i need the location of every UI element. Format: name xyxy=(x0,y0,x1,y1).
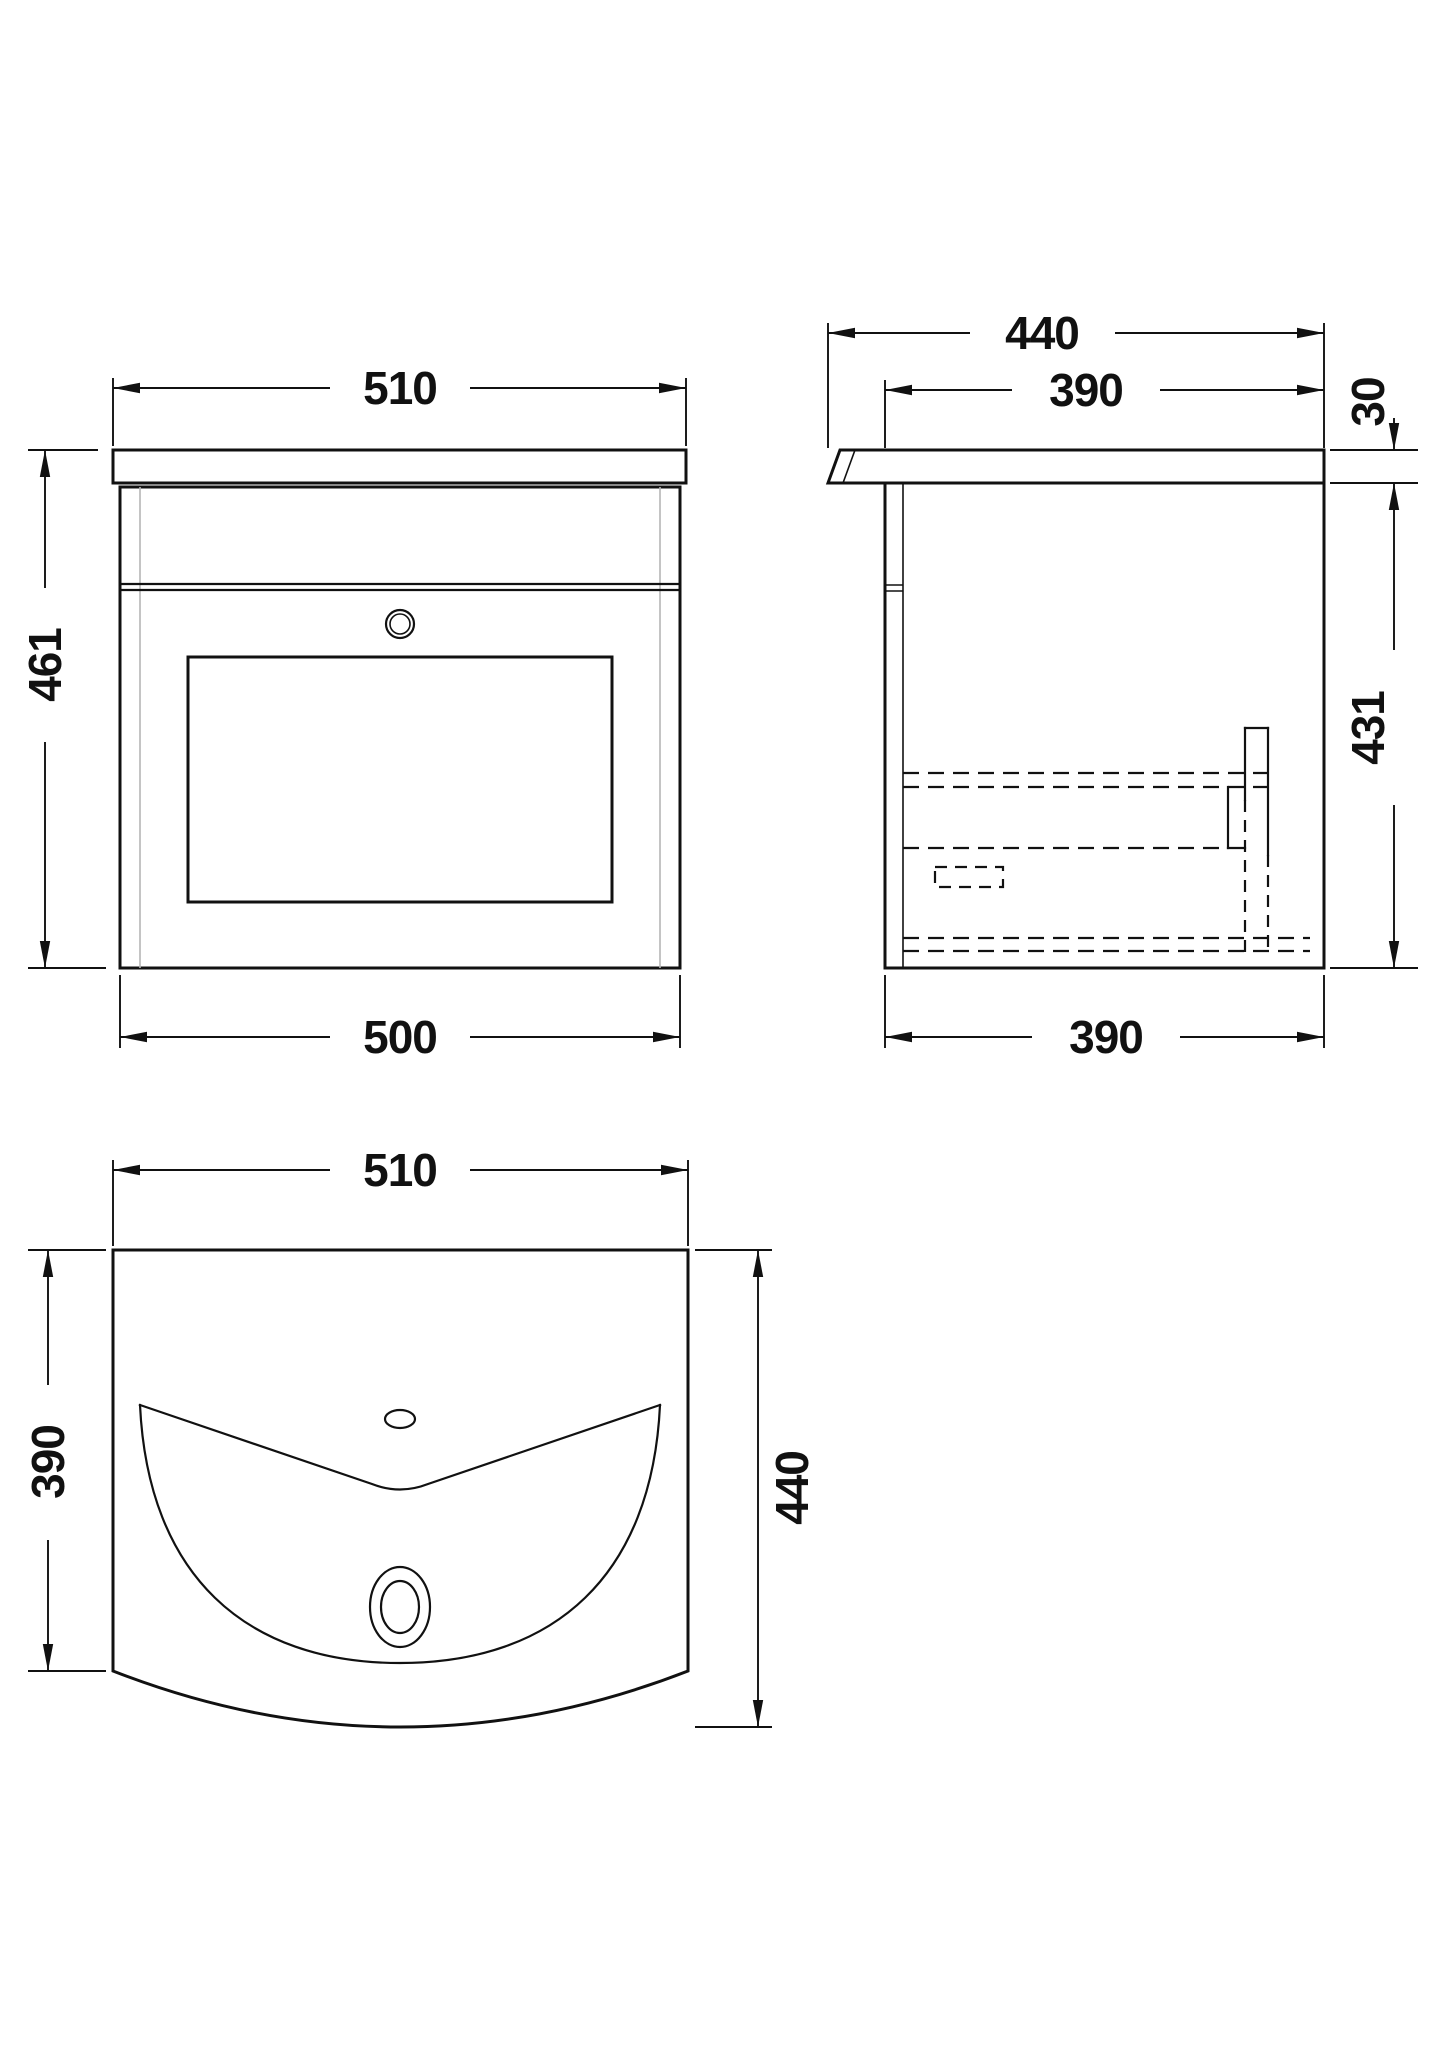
front-overflow-hole-inner xyxy=(390,614,410,634)
front-elevation-view: 510 461 500 xyxy=(19,362,686,1063)
dim-label: 390 xyxy=(1049,364,1123,416)
dim-plan-depth-overall: 440 xyxy=(695,1250,818,1727)
front-cabinet-body xyxy=(120,487,680,968)
technical-drawing-page: 510 461 500 xyxy=(0,0,1445,2045)
plan-tap-hole xyxy=(385,1410,415,1428)
dim-front-width-bottom: 500 xyxy=(120,975,680,1063)
dim-label: 500 xyxy=(363,1011,437,1063)
plan-basin-ledge xyxy=(140,1405,660,1490)
plan-waste-hole-inner xyxy=(381,1581,419,1633)
side-countertop-edge-profile xyxy=(843,450,855,483)
wall-bracket xyxy=(1245,728,1268,955)
front-countertop xyxy=(113,450,686,483)
side-countertop xyxy=(828,450,1324,483)
dim-plan-width: 510 xyxy=(113,1144,688,1246)
dim-side-depth-bottom: 390 xyxy=(885,975,1324,1063)
hidden-fixing-block xyxy=(935,867,1003,887)
dim-label: 390 xyxy=(22,1425,74,1499)
dim-label: 510 xyxy=(363,1144,437,1196)
dim-label: 431 xyxy=(1342,691,1394,765)
vanity-unit-dimension-drawing: 510 461 500 xyxy=(0,0,1445,2045)
dim-side-counter-thickness: 30 xyxy=(1330,377,1418,483)
dim-side-body-height: 431 xyxy=(1330,483,1418,968)
dim-front-height: 461 xyxy=(19,450,106,968)
plan-waste-hole-outer xyxy=(370,1567,430,1647)
dim-label: 30 xyxy=(1342,377,1394,426)
plan-basin-bowl xyxy=(140,1405,660,1663)
front-recessed-panel xyxy=(188,657,612,902)
dim-label: 440 xyxy=(766,1451,818,1525)
dim-label: 461 xyxy=(19,628,71,702)
plan-view: 510 390 440 xyxy=(22,1144,818,1727)
dim-label: 390 xyxy=(1069,1011,1143,1063)
dim-label: 510 xyxy=(363,362,437,414)
dim-front-width-top: 510 xyxy=(113,362,686,446)
dim-label: 440 xyxy=(1005,307,1079,359)
side-elevation-view: 440 390 30 431 390 xyxy=(828,307,1418,1063)
dim-plan-depth-side: 390 xyxy=(22,1250,106,1671)
dim-side-depth-top: 390 xyxy=(885,364,1324,448)
